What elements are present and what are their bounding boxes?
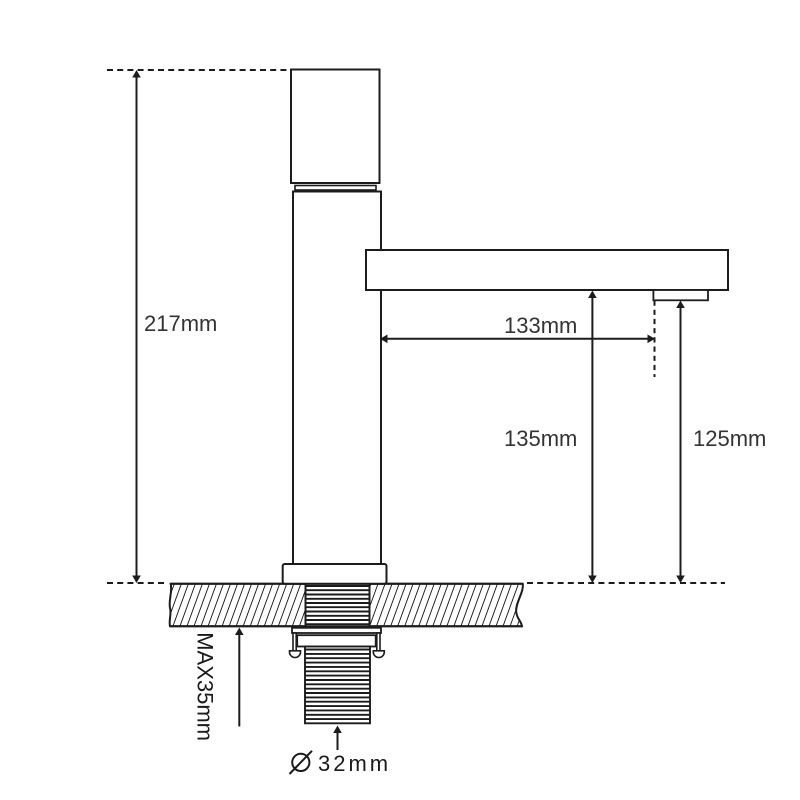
svg-text:217mm: 217mm (144, 311, 217, 336)
svg-text:135mm: 135mm (504, 426, 577, 451)
svg-text:MAX35mm: MAX35mm (193, 632, 218, 741)
svg-text:32mm: 32mm (318, 751, 391, 776)
svg-text:125mm: 125mm (693, 426, 766, 451)
svg-text:133mm: 133mm (504, 313, 577, 338)
